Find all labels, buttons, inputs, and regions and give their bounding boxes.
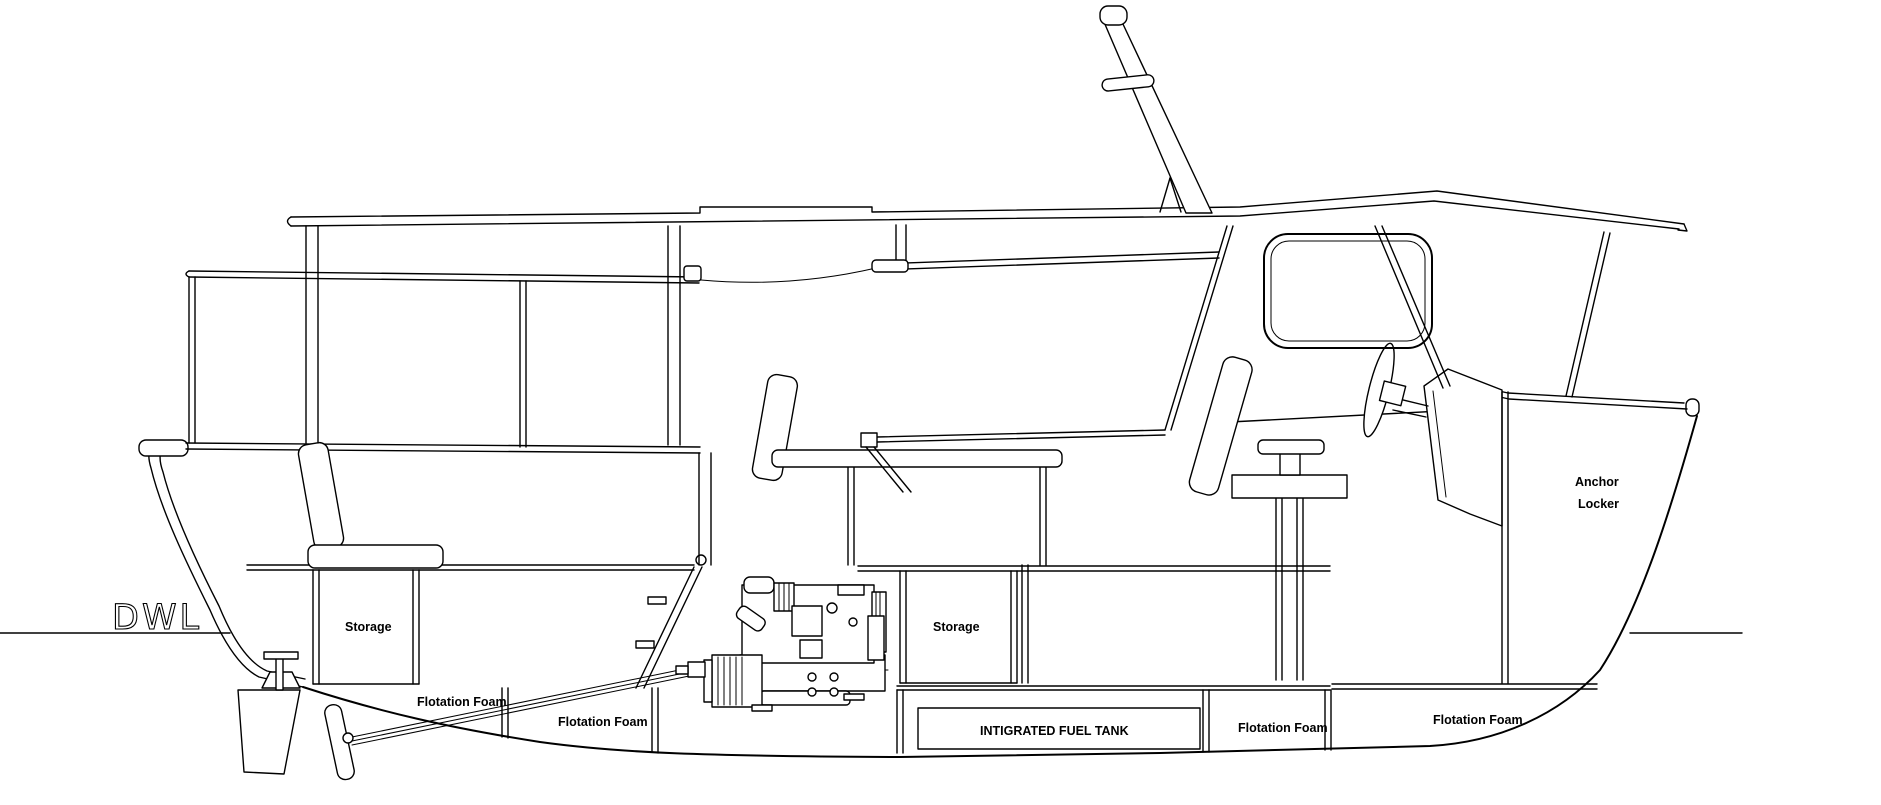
compartment-labels: Storage Storage Flotation Foam Flotation… [345, 475, 1619, 738]
stern-gunwale-cap [139, 440, 188, 456]
helm-console [1424, 369, 1502, 526]
hardtop-roof [288, 191, 1688, 231]
stern-bench [297, 441, 443, 568]
boat-profile-drawing: DWL [0, 0, 1881, 805]
deck-step [861, 433, 877, 447]
stern-bench-seat [308, 545, 443, 568]
gate-opening-curve [701, 268, 876, 282]
helm-seat-pedestal [1280, 453, 1300, 475]
mid-bench-seat [772, 450, 1062, 467]
boat-profile-svg: DWL [0, 0, 1881, 805]
propeller-shaft [352, 667, 694, 745]
rudder [238, 652, 300, 774]
pilothouse [1165, 226, 1610, 683]
engine [676, 577, 888, 711]
bow-roller [1686, 399, 1699, 416]
helm-seat-cushion [1258, 440, 1324, 454]
deck-soles [247, 565, 1597, 690]
propeller-hub [343, 733, 353, 743]
engine-mount [844, 694, 864, 700]
engine-gearbox [712, 655, 762, 707]
flotation-foam-label-1: Flotation Foam [417, 695, 507, 709]
stern-bench-backrest [297, 441, 345, 551]
storage-aft-label: Storage [345, 620, 392, 634]
flotation-foam-label-3: Flotation Foam [1238, 721, 1328, 735]
engine-mount [752, 705, 772, 711]
mast [1100, 6, 1212, 213]
fuel-tank-label: INTIGRATED FUEL TANK [980, 724, 1129, 738]
engine-intake [744, 577, 774, 593]
storage-mid-label: Storage [933, 620, 980, 634]
cabin-window [1264, 234, 1432, 348]
helm-seat-base [1232, 475, 1347, 498]
anchor-locker-label-line1: Anchor [1575, 475, 1619, 489]
helm-seat [1187, 355, 1347, 680]
engine-output-flange [688, 662, 705, 677]
dwl-label: DWL [112, 598, 202, 638]
flotation-foam-label-4: Flotation Foam [1433, 713, 1523, 727]
mast-light [1100, 6, 1127, 25]
flotation-foam-label-2: Flotation Foam [558, 715, 648, 729]
anchor-locker-label-line2: Locker [1578, 497, 1619, 511]
aft-railing [186, 252, 1219, 447]
mid-bench [751, 373, 1062, 565]
steering-wheel [1358, 341, 1428, 443]
